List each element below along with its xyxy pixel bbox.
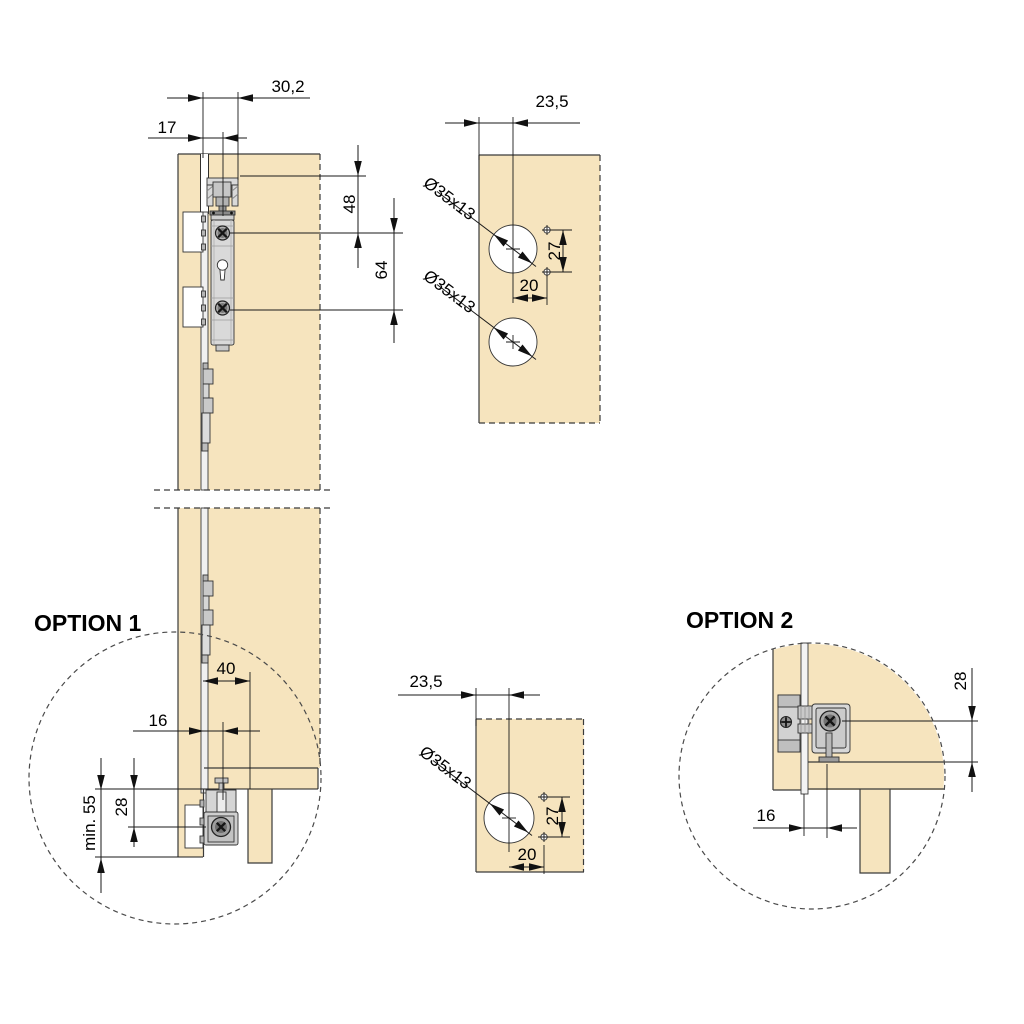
side-hole-1 xyxy=(183,212,203,252)
dim-track-width: 30,2 xyxy=(271,77,304,96)
dim-hole-spacing: 64 xyxy=(372,261,391,280)
dim-bracket-height-option2: 28 xyxy=(951,672,970,691)
dim-front-offset-option2: 16 xyxy=(757,806,776,825)
hinge-assembly-option2 xyxy=(778,695,850,762)
dim-screw-spacing-top: 27 xyxy=(545,242,564,261)
dim-screw-spacing-bottom: 27 xyxy=(543,807,562,826)
option1-title: OPTION 1 xyxy=(34,610,142,636)
dim-front-offset-option1: 16 xyxy=(149,711,168,730)
dim-bracket-height-option1: 28 xyxy=(112,798,131,817)
furniture-fitting-diagram: 30,2 17 48 64 23,5 Ø35x13 Ø35x13 27 xyxy=(0,0,1024,1024)
door-panel-lower xyxy=(178,508,320,768)
plate-screw-1 xyxy=(216,226,230,240)
plate-screw-2 xyxy=(216,301,230,315)
dim-screw-offset-bottom: 20 xyxy=(518,845,537,864)
hole2-label: Ø35x13 xyxy=(420,266,479,317)
dim-front-offset-main: 17 xyxy=(158,118,177,137)
dim-top-to-hole1: 48 xyxy=(340,195,359,214)
roller-carriage xyxy=(207,178,238,220)
dim-edge-offset-top: 23,5 xyxy=(535,92,568,111)
technical-drawing-page: 30,2 17 48 64 23,5 Ø35x13 Ø35x13 27 xyxy=(0,0,1024,1024)
break-lines xyxy=(154,490,333,508)
option2-title: OPTION 2 xyxy=(686,607,793,633)
hole1-label: Ø35x13 xyxy=(420,173,479,224)
support-leg-option1 xyxy=(248,789,272,863)
dim-min-clearance: min. 55 xyxy=(80,795,99,851)
mounting-plate xyxy=(211,220,234,351)
side-hole-2 xyxy=(183,287,203,327)
support-leg-option2 xyxy=(860,789,890,873)
hole3-label: Ø35x13 xyxy=(416,742,475,793)
dim-depth-option1: 40 xyxy=(217,659,236,678)
dim-screw-offset-top: 20 xyxy=(520,276,539,295)
dim-edge-offset-bottom: 23,5 xyxy=(409,672,442,691)
drill-panel-top xyxy=(479,155,600,423)
